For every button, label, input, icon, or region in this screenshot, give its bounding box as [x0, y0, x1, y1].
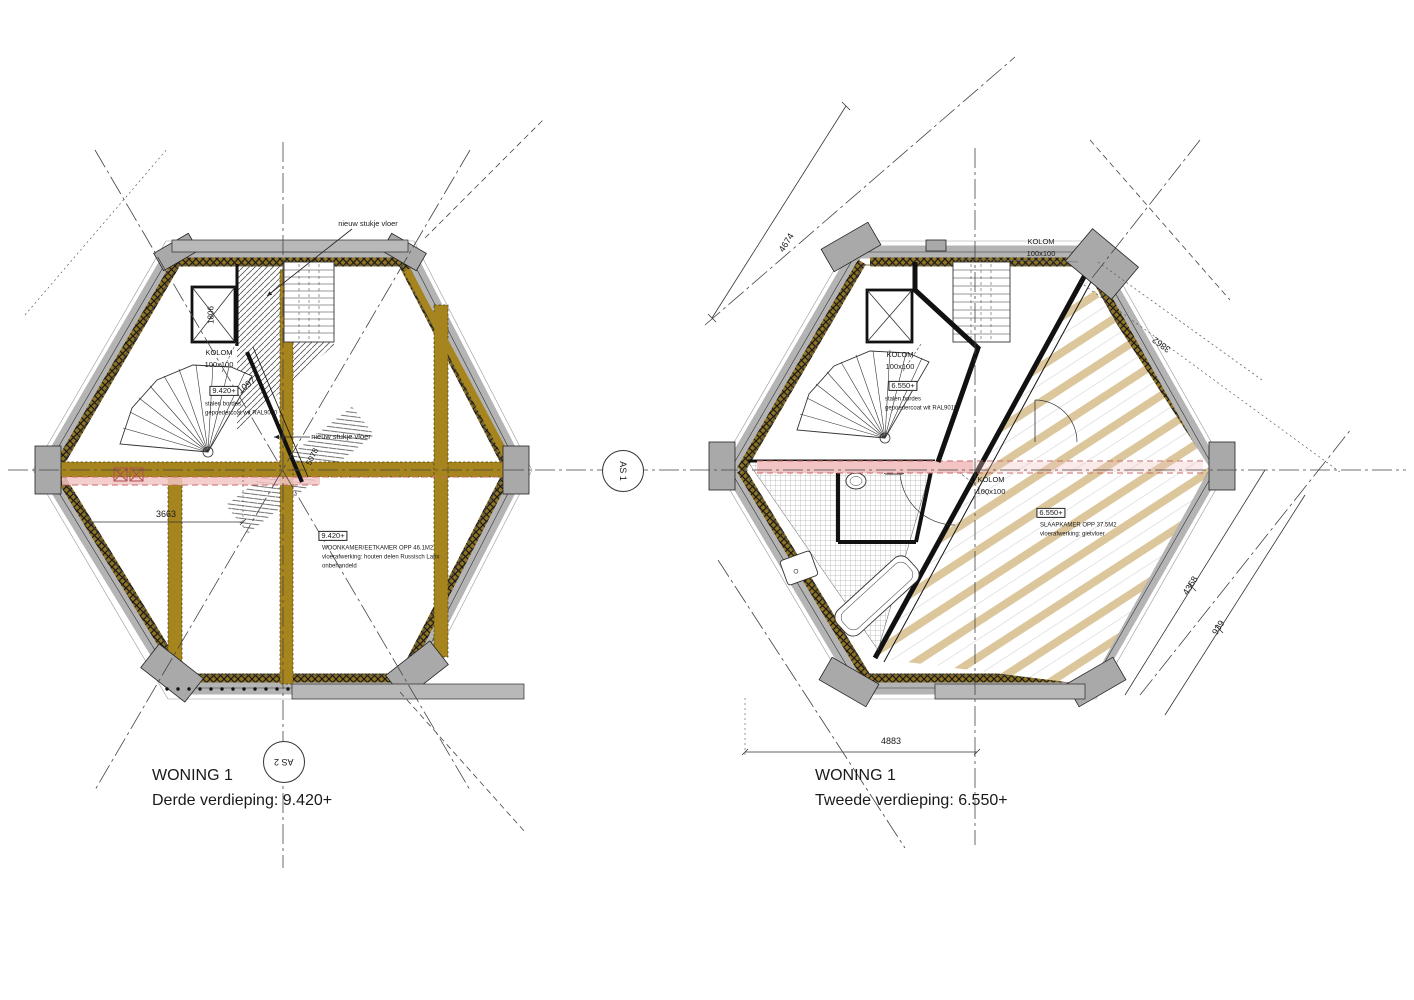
floorplan-sheet: nieuw stukje vloernieuw stukje vloerKOLO…	[0, 0, 1414, 1000]
dim-4883: 4883	[881, 737, 901, 747]
note-ral-right: gepoedercoat wit RAL9010	[885, 406, 957, 413]
axis-marker-as2: AS 2	[263, 741, 305, 783]
label-kolom-left: KOLOM	[205, 349, 232, 357]
label-kolom-center-right-plan: KOLOM	[977, 476, 1004, 484]
level-badge-bordes-left: 9.420+	[209, 386, 238, 396]
note-woonkamer-vloer: vloerafwerking: houten delen Russisch La…	[322, 555, 439, 562]
annotation-layer: nieuw stukje vloernieuw stukje vloerKOLO…	[0, 0, 1414, 1000]
axis-marker-label: AS 2	[274, 757, 294, 767]
axis-marker-label: AS 1	[618, 461, 628, 481]
dim-5078: 5078	[305, 447, 321, 467]
label-kolom-mid-right-plan: KOLOM	[886, 351, 913, 359]
label-kolom-center-right-plan-size: 100x100	[977, 488, 1006, 496]
dim-3862: 3862	[1151, 334, 1173, 354]
dim-1097: 1097	[236, 376, 258, 396]
axis-marker-as1: AS 1	[602, 450, 644, 492]
label-nieuw-stukje-vloer-top: nieuw stukje vloer	[338, 220, 398, 228]
plan-left-title: WONING 1	[152, 767, 233, 785]
level-badge-woonkamer: 9.420+	[318, 531, 347, 541]
note-stalen-bordes-left: stalen bordes	[205, 402, 241, 409]
label-kolom-top-right-plan-size: 100x100	[1027, 250, 1056, 258]
dim-4674: 4674	[777, 232, 796, 254]
label-shaft-1806: 1806	[208, 306, 217, 324]
plan-right-subtitle: Tweede verdieping: 6.550+	[815, 792, 1008, 810]
label-nieuw-stukje-vloer-mid: nieuw stukje vloer	[311, 433, 371, 441]
note-woonkamer-opp: WOONKAMER/EETKAMER OPP 46.1M2	[322, 546, 433, 553]
dim-939: 939	[1211, 619, 1227, 637]
plan-right-title: WONING 1	[815, 767, 896, 785]
note-ral-left: gepoedercoat wit RAL9010	[205, 411, 277, 418]
level-badge-slaapkamer: 6.550+	[1036, 508, 1065, 518]
dim-4368: 4368	[1181, 575, 1200, 597]
label-kolom-top-right-plan: KOLOM	[1027, 238, 1054, 246]
level-badge-bordes-right: 6.550+	[888, 381, 917, 391]
plan-left-subtitle: Derde verdieping: 9.420+	[152, 792, 332, 810]
note-slaapkamer-vloer: vloerafwerking: gietvloer	[1040, 532, 1105, 539]
label-kolom-left-size: 100x100	[205, 361, 234, 369]
note-slaapkamer-opp: SLAAPKAMER OPP 37.5M2	[1040, 523, 1117, 530]
note-stalen-bordes-right: stalen bordes	[885, 397, 921, 404]
note-woonkamer-onbehandeld: onbehandeld	[322, 564, 357, 571]
label-kolom-mid-right-plan-size: 100x100	[886, 363, 915, 371]
dim-3663: 3663	[156, 510, 176, 520]
